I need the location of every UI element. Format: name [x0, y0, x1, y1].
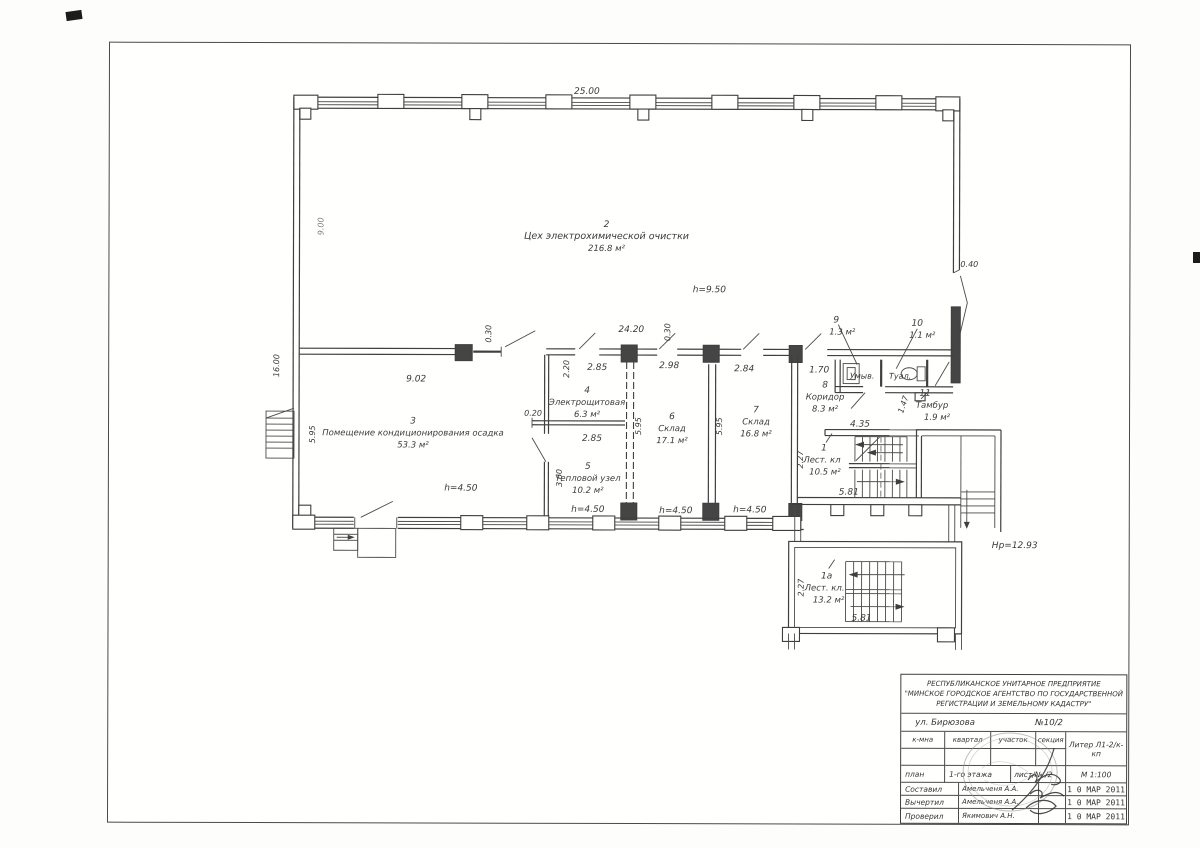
cell-doc-type: план: [901, 766, 945, 783]
dim-5-95: 5.95: [715, 417, 724, 435]
cell-date-1: 1 0 МАР 2011: [1066, 783, 1126, 796]
org-name-line3: РЕГИСТРАЦИИ И ЗЕМЕЛЬНОМУ КАДАСТРУ": [936, 699, 1091, 710]
room-1-num: 1: [821, 444, 827, 454]
address-street: ул. Бирюзова: [915, 717, 975, 727]
room-8-area: 8.3 м²: [812, 405, 839, 415]
height-label: h=4.50: [659, 506, 693, 516]
cell-sig-2: [1039, 796, 1066, 809]
room-10-num: 10: [912, 319, 924, 329]
dim-hp: Нр=12.93: [992, 541, 1038, 551]
height-label: h=4.50: [733, 505, 767, 515]
dim-9-02: 9.02: [406, 374, 426, 384]
cell-empty: [1036, 749, 1066, 766]
cell-sig-3: [1039, 809, 1066, 823]
height-label: h=4.50: [571, 505, 605, 515]
room-7-num: 7: [753, 405, 759, 415]
dim-4-35: 4.35: [850, 420, 870, 430]
room-1-name: Лест. кл: [802, 455, 841, 465]
scan-speck: [65, 10, 82, 21]
dim-5-95: 5.95: [634, 417, 643, 435]
room-7-area: 16.8 м²: [740, 429, 772, 439]
dim-1-47: 1.47: [896, 394, 910, 415]
room-4-area: 6.3 м²: [574, 410, 601, 420]
room-9-area: 1.3 м²: [829, 328, 856, 338]
scan-speck: [1193, 252, 1200, 263]
dim-2-98: 2.98: [659, 361, 679, 371]
org-name-line2: "МИНСКОЕ ГОРОДСКОЕ АГЕНТСТВО ПО ГОСУДАРС…: [905, 689, 1123, 700]
address-number: №10/2: [1035, 718, 1063, 728]
room-2-num: 2: [604, 220, 610, 230]
room-8-name: Коридор: [806, 392, 845, 402]
room-2-name: Цех электрохимической очистки: [524, 231, 689, 242]
cell-sekcia: секция: [1036, 732, 1066, 749]
height-label: h=4.50: [444, 484, 478, 494]
cell-scale: М 1:100: [1066, 766, 1126, 783]
room-4-num: 4: [584, 386, 590, 396]
room-9-num: 9: [833, 316, 839, 326]
room-3-name: Помещение кондиционирования осадка: [322, 428, 503, 438]
room-3-num: 3: [410, 416, 416, 426]
cell-role-3: Проверил: [901, 809, 959, 823]
room-5-area: 10.2 м²: [572, 486, 604, 496]
cell-empty: [945, 749, 991, 766]
room-2-area: 216.8 м²: [588, 244, 625, 254]
room-4-name: Электрощитовая: [548, 398, 625, 408]
dim-total-width: 25.00: [574, 87, 600, 97]
room-7-name: Склад: [742, 417, 770, 427]
room-6-name: Склад: [658, 424, 686, 434]
cell-kmna: к-мна: [901, 732, 945, 749]
dim-2-84: 2.84: [734, 364, 754, 374]
room-1a-name: Лест. кл.: [804, 583, 845, 593]
cell-sig-1: [1039, 783, 1066, 796]
room-9-label: Умыв.: [850, 372, 875, 381]
cell-date-3: 1 0 МАР 2011: [1066, 809, 1126, 823]
drawing-sheet: 25.00 9.00 16.00 0.40 24.20 0.30 0.30 9.…: [107, 42, 1131, 826]
dim-2-85: 2.85: [587, 363, 607, 373]
room-11-name: Тамбур: [916, 401, 949, 411]
org-name-line1: РЕСПУБЛИКАНСКОЕ УНИТАРНОЕ ПРЕДПРИЯТИЕ: [927, 679, 1101, 690]
cell-doc-value: 1-го этажа: [945, 766, 1011, 783]
cell-empty: [901, 749, 945, 766]
dim-0-20: 0.20: [524, 409, 542, 418]
room-8-num: 8: [822, 381, 828, 391]
cell-name-2: Амельченя А.А.: [959, 796, 1039, 809]
room-5-name: Тепловой узел: [555, 474, 621, 484]
height-label: h=9.50: [693, 285, 727, 295]
room-6-area: 17.1 м²: [656, 436, 688, 446]
room-10-label: Туал.: [889, 372, 911, 381]
room-6-num: 6: [669, 412, 675, 422]
room-5-num: 5: [585, 462, 591, 472]
room-11-area: 1.9 м²: [924, 413, 951, 423]
dim-0-40: 0.40: [960, 260, 978, 269]
dim-2-20: 2.20: [562, 360, 571, 378]
dim-0-30: 0.30: [663, 323, 672, 341]
dim-5-95: 5.95: [308, 425, 317, 443]
room-1a-area: 13.2 м²: [813, 596, 845, 606]
dim-2-85: 2.85: [582, 434, 602, 444]
cell-name-3: Якимович А.Н.: [959, 809, 1039, 823]
cell-kvartal: квартал: [945, 732, 991, 749]
dim-24-20: 24.20: [618, 325, 644, 335]
room-3-area: 53.3 м²: [397, 440, 429, 450]
cell-name-1: Амельченя А.А.: [959, 783, 1039, 796]
staircase-1a: [782, 504, 961, 649]
scanned-floor-plan-page: { "plan": { "rooms": { "r2": {"num": "2"…: [0, 0, 1200, 848]
dim-16-00: 16.00: [272, 354, 281, 377]
title-block: РЕСПУБЛИКАНСКОЕ УНИТАРНОЕ ПРЕДПРИЯТИЕ "М…: [900, 674, 1127, 825]
room-1a-num: 1а: [821, 572, 832, 582]
room-1-area: 10.5 м²: [809, 467, 841, 477]
dim-9-00: 9.00: [317, 217, 326, 235]
room-10-area: 1.1 м²: [909, 331, 936, 341]
cell-role-2: Вычертил: [901, 796, 959, 809]
cell-uchastok: участок: [991, 732, 1036, 749]
cell-empty: [991, 749, 1036, 766]
dim-0-30: 0.30: [484, 325, 493, 343]
dim-5-81: 5.81: [851, 614, 871, 624]
dim-5-81: 5.81: [839, 488, 859, 498]
dim-1-70: 1.70: [809, 365, 829, 375]
cell-role-1: Составил: [901, 783, 959, 796]
room-11-num: 11: [919, 389, 930, 399]
cell-date-2: 1 0 МАР 2011: [1066, 796, 1126, 809]
cell-sheet: лист/№ /2: [1011, 766, 1066, 783]
cell-liter: Литер Л1-2/к-кп: [1066, 732, 1126, 766]
